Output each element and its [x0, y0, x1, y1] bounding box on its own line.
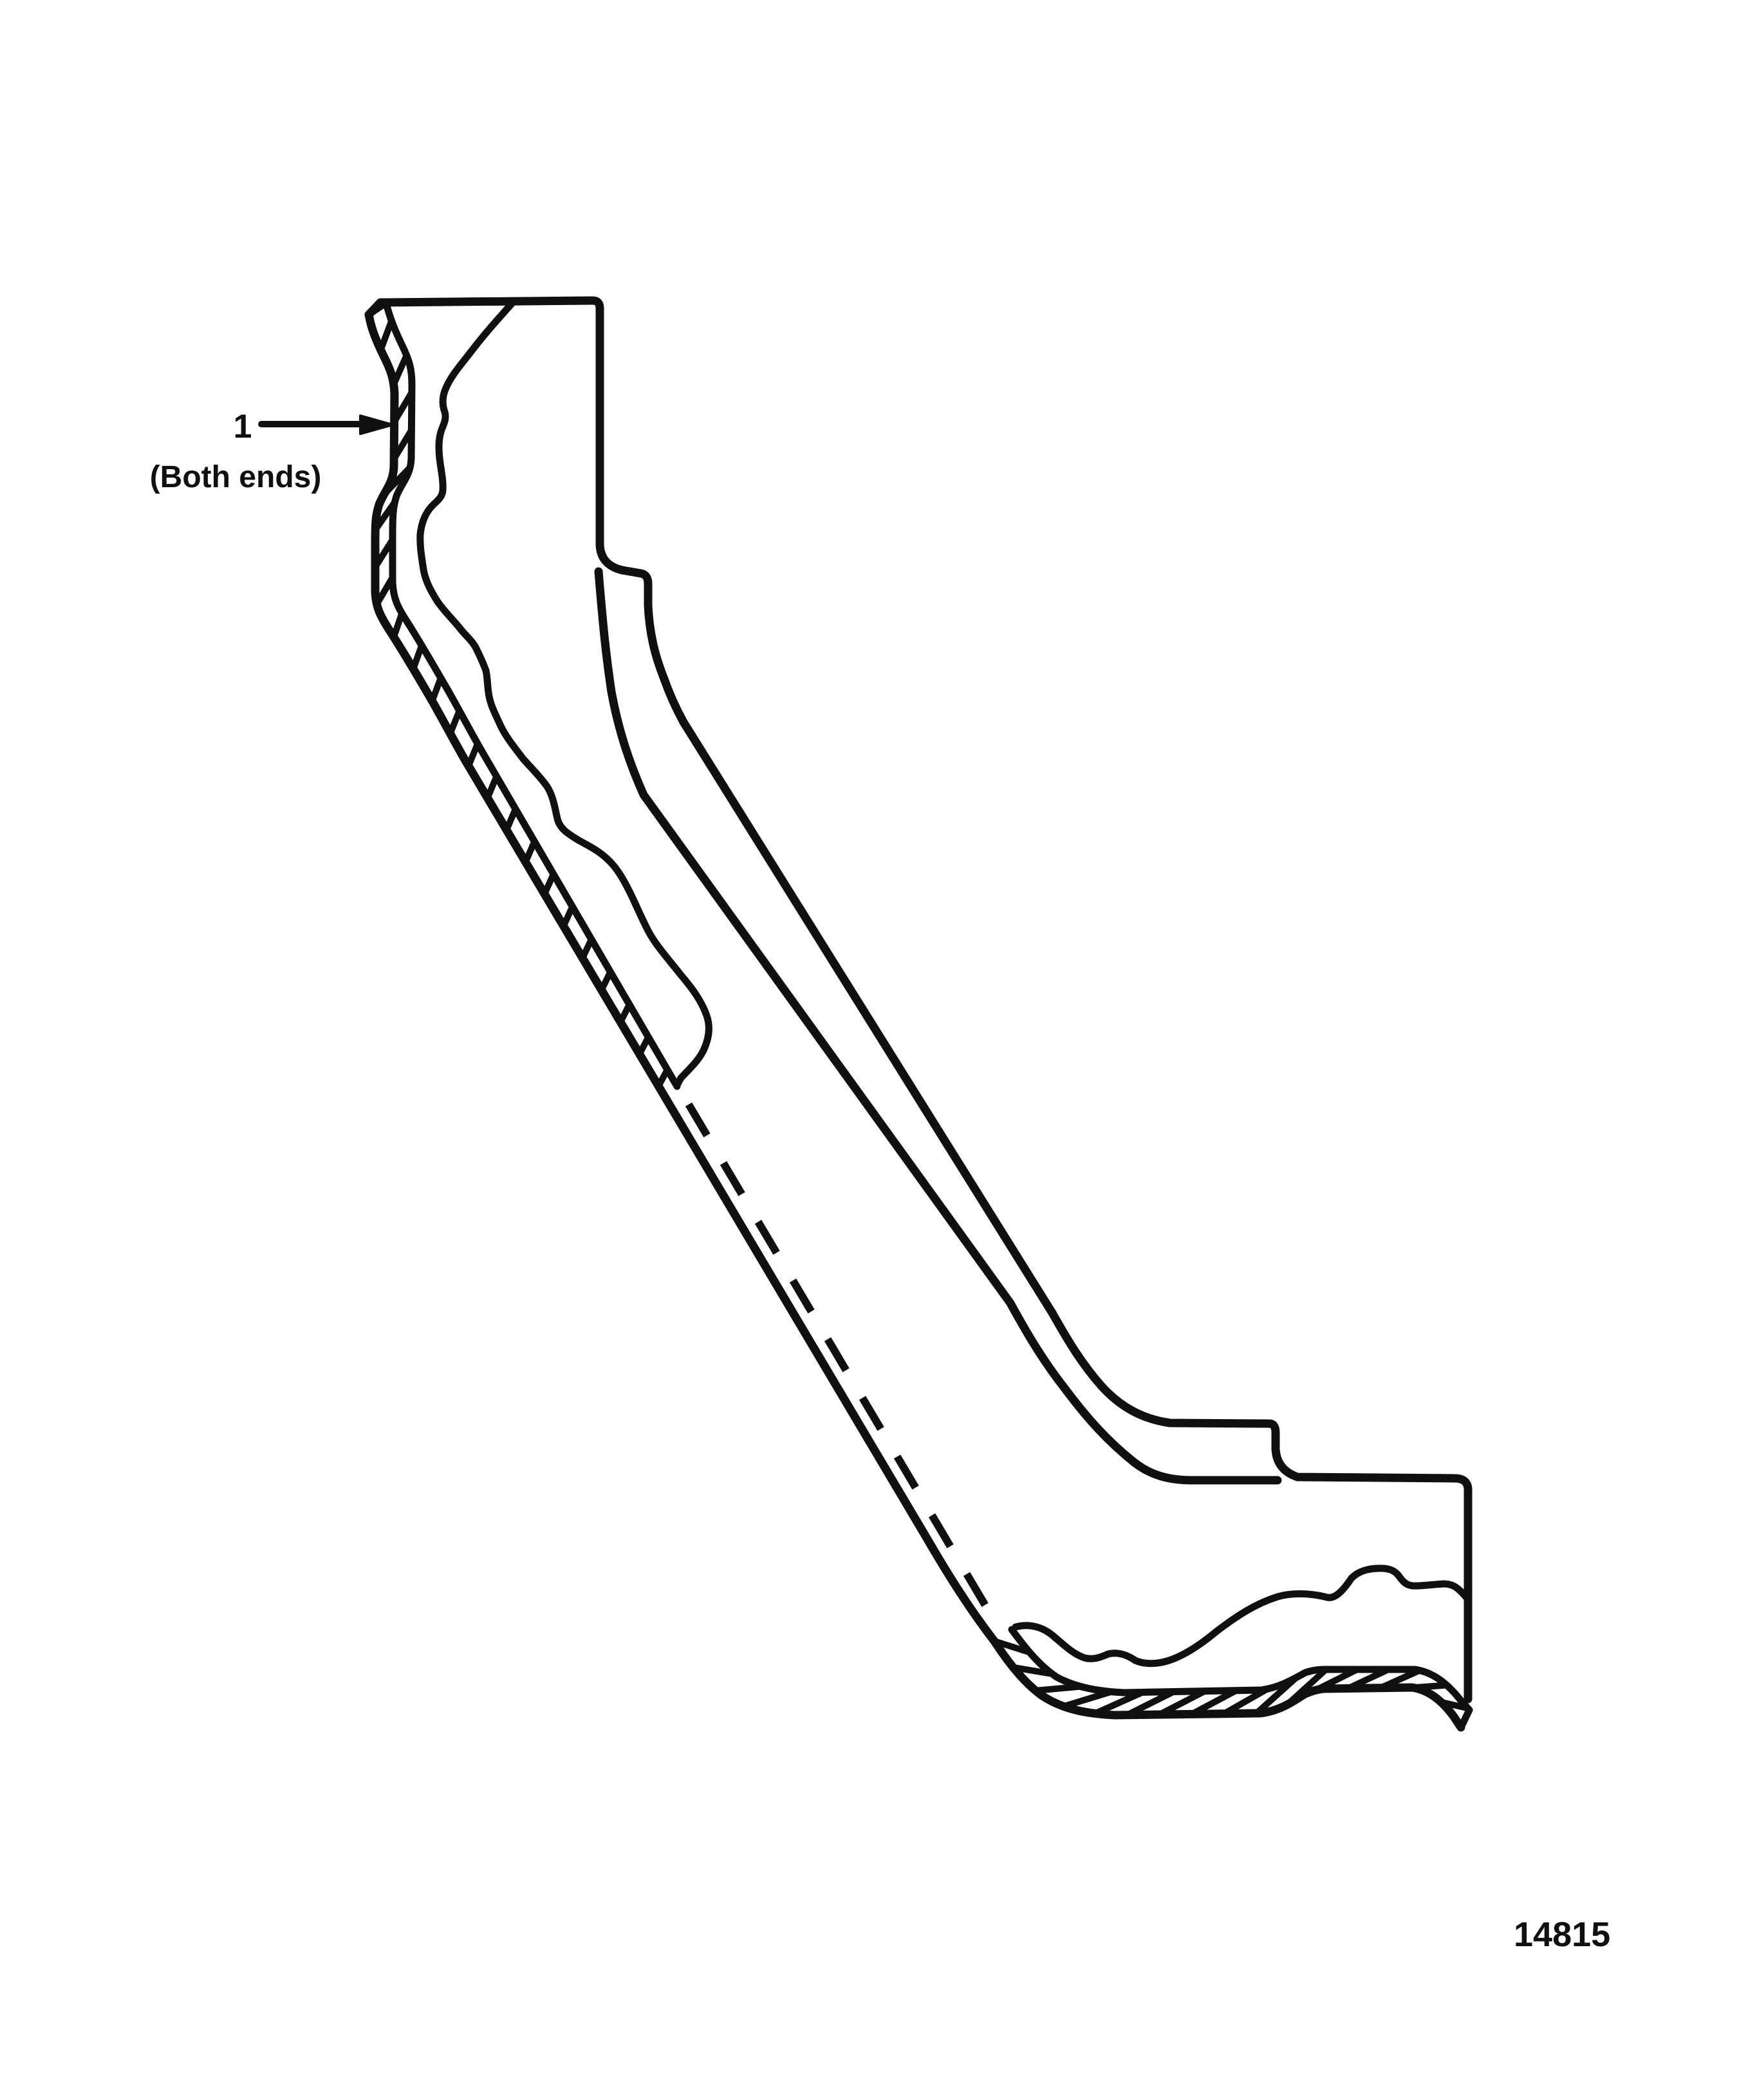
- scanned-figure-page: 1 (Both ends) 14815: [0, 0, 1757, 2100]
- callout-arrow-head-icon: [360, 416, 393, 434]
- part-outline-flange-outer: [369, 315, 1461, 1727]
- part-outline-main: [369, 301, 1468, 1699]
- sealer-boundary-bottom: [1016, 1568, 1468, 1664]
- callout-number-label: 1: [234, 408, 252, 445]
- hidden-bend-dashed-line: [689, 1104, 999, 1628]
- callout-arrow: [261, 416, 393, 434]
- part-inner-bend-edge: [599, 571, 1278, 1480]
- callout-note-label: (Both ends): [150, 460, 322, 494]
- figure-number-label: 14815: [1514, 1915, 1610, 1954]
- technical-diagram: 1 (Both ends) 14815: [0, 0, 1757, 2100]
